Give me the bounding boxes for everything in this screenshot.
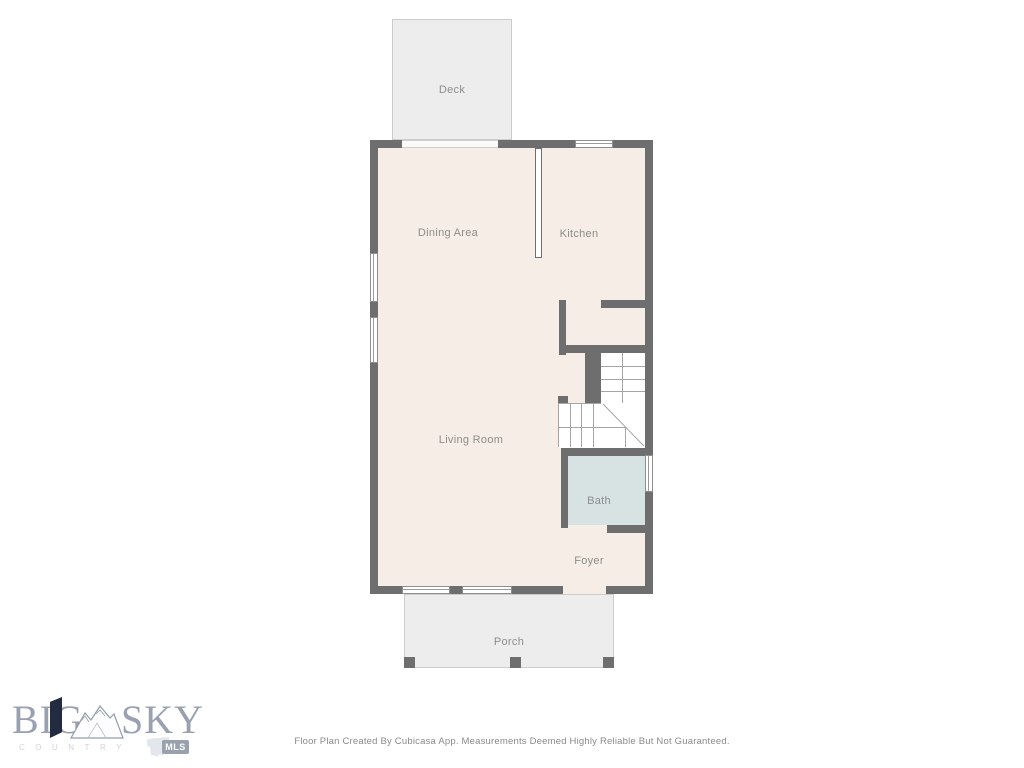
living-window-symbol	[370, 317, 378, 363]
wall-bath-left	[561, 448, 568, 528]
room-bath-floor	[568, 456, 645, 525]
room-label-kitchen: Kitchen	[560, 228, 599, 240]
bath-window-symbol	[645, 455, 653, 492]
footer-disclaimer: Floor Plan Created By Cubicasa App. Meas…	[0, 736, 1024, 747]
logo-banner-icon	[50, 697, 62, 738]
room-label-porch: Porch	[494, 636, 524, 648]
front-door-opening	[563, 586, 606, 594]
room-deck	[392, 19, 512, 140]
wall-bath-top	[561, 448, 645, 456]
wall-closet-top	[601, 300, 645, 308]
porch-window-symbol	[402, 586, 450, 594]
porch-post	[404, 657, 415, 668]
wall-right	[645, 140, 653, 594]
room-label-deck: Deck	[439, 84, 465, 96]
room-label-foyer: Foyer	[574, 555, 604, 567]
mountain-icon	[70, 705, 124, 739]
wall-bath-bottom	[607, 525, 645, 533]
room-label-bath: Bath	[587, 495, 611, 507]
wall-closet-bottom	[559, 345, 645, 353]
kitchen-window-symbol	[575, 140, 613, 148]
staircase-treads	[558, 353, 645, 448]
wall-dining-kitchen-partition	[535, 148, 542, 258]
wall-left	[370, 140, 378, 594]
room-label-living: Living Room	[439, 434, 503, 446]
living-window-symbol	[370, 253, 378, 302]
porch-window-symbol	[462, 586, 512, 594]
logo-word-sky: SKY	[121, 700, 204, 740]
room-porch	[404, 594, 614, 668]
big-sky-country-mls-logo: BIG SKY COUNTRY MLS	[12, 692, 212, 764]
floor-plan: Deck Dining Area Kitchen Living Room Bat…	[0, 0, 1024, 768]
porch-post	[510, 657, 521, 668]
porch-post	[603, 657, 614, 668]
sliding-door-symbol	[402, 140, 498, 148]
wall-top-mid-segment	[498, 140, 575, 148]
room-label-dining: Dining Area	[418, 227, 478, 239]
